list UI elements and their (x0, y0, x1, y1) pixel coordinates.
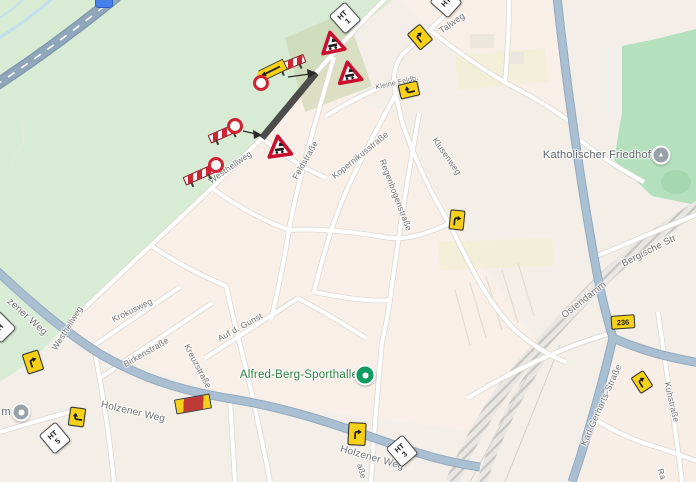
detour-route-marker-text: 3 (400, 450, 408, 459)
turn-arrow-icon (635, 375, 649, 389)
turn-arrow-icon (413, 30, 427, 44)
label-talweg: Talweg (437, 11, 467, 36)
detour-route-marker-text: H (0, 322, 5, 331)
label-karl-gerharts-stra-e: Karl-Gerharts-Straße (579, 363, 624, 447)
road-closed-ring-icon (253, 75, 269, 91)
construction-detour-arrow-sign (68, 406, 86, 427)
label-feldstra-e: Feldstraße (290, 139, 320, 181)
label-auf-d-gunst: Auf d. Gunst (216, 311, 264, 344)
label-regenbogenstra-e: Regenbogenstraße (378, 158, 415, 233)
label-westhellweg: Westhellweg (49, 304, 84, 352)
detour-route-marker-text: 5 (53, 437, 61, 446)
map-overlay: TalwegKleine Feldb.WesthellwegFeldstraße… (0, 0, 696, 482)
turn-arrow-icon (452, 214, 462, 226)
turn-arrow-icon (403, 84, 416, 95)
label-krokusweg: Krokusweg (110, 296, 154, 324)
generic-poi-icon[interactable] (12, 403, 31, 422)
cemetery-poi-icon[interactable]: ▲ (652, 146, 671, 165)
label-m: m (1, 406, 10, 418)
highway-marker-icon[interactable] (95, 0, 113, 8)
sports-hall-poi-icon[interactable] (355, 365, 376, 386)
detour-route-marker-text: HT (440, 0, 453, 8)
warning-triangle-roadworks-icon (334, 58, 364, 86)
label-ra: Ra (656, 467, 669, 481)
construction-detour-arrow-sign (631, 370, 654, 394)
road-closed-ring-icon (227, 118, 243, 134)
detour-route-marker: HT5 (39, 421, 72, 454)
construction-detour-arrow-sign (407, 23, 434, 50)
detour-route-marker: H (0, 310, 17, 343)
label-birkenstra-e: Birkenstraße (122, 335, 171, 369)
tree-icon: ▲ (658, 152, 665, 159)
turn-arrow-icon (352, 428, 362, 439)
construction-detour-arrow-sign (22, 349, 45, 374)
label-alfred-berg-sporthalle: Alfred-Berg-Sporthalle (240, 369, 358, 381)
label-klusenweg: Klusenweg (430, 135, 463, 176)
label-katholischer-friedhof: Katholischer Friedhof (543, 149, 651, 161)
label-a-e: aße (355, 462, 369, 479)
poi-dot (18, 409, 24, 415)
turn-arrow-icon (71, 412, 83, 422)
turn-arrow-icon (27, 355, 39, 368)
map-canvas[interactable]: TalwegKleine Feldb.WesthellwegFeldstraße… (0, 0, 696, 482)
construction-detour-arrow-sign (347, 422, 366, 446)
label-ostendamm: Ostendamm (560, 279, 609, 321)
detour-end-sign (174, 393, 212, 414)
label-kuhstra-e: Kuhstraße (663, 381, 682, 423)
label-kopernikusstra-e: Kopernikusstraße (330, 129, 391, 181)
warning-triangle-roadworks-icon (264, 132, 293, 159)
label-holzener-weg: Holzener Weg (100, 399, 166, 424)
poi-dot (362, 372, 368, 378)
label-kreuzstra-e: Kreuzstraße (182, 342, 214, 390)
road-closed-ring-icon (208, 157, 224, 173)
label-bergische-str: Bergische Str (620, 233, 678, 270)
construction-detour-arrow-sign (398, 80, 421, 99)
detour-route-marker-text: 1 (343, 17, 351, 26)
construction-detour-arrow-sign (448, 209, 465, 230)
route-shield-text: 236 (616, 317, 629, 327)
route-shield-236: 236 (611, 314, 636, 330)
